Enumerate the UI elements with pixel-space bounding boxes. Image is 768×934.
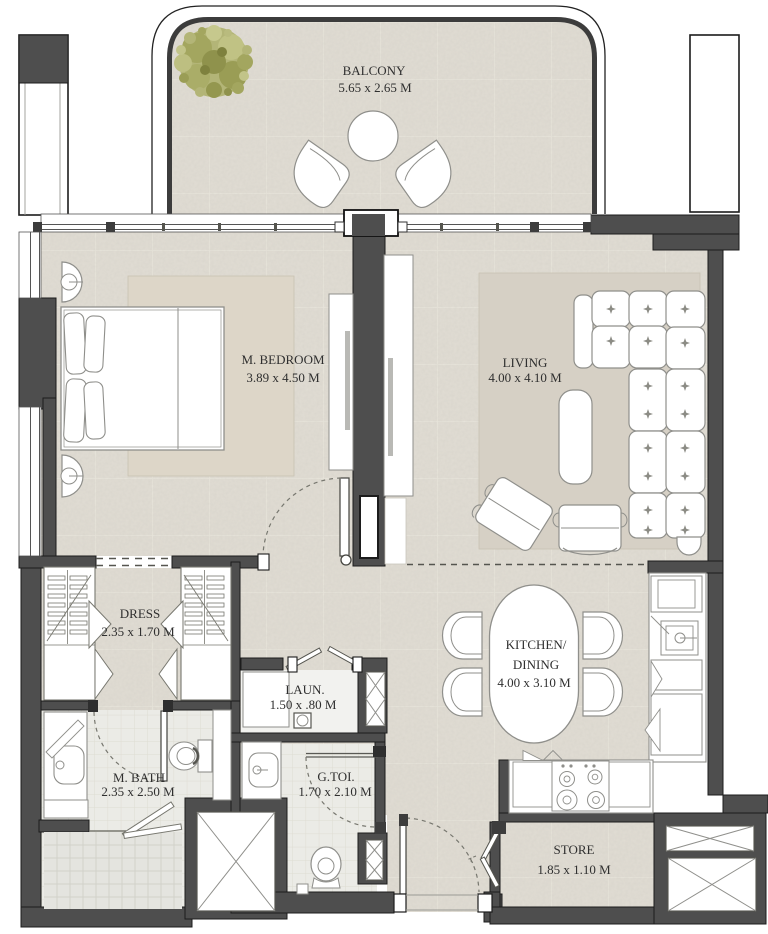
svg-text:G.TOI.: G.TOI. (317, 769, 354, 784)
svg-text:1.85 x 1.10 M: 1.85 x 1.10 M (537, 862, 611, 877)
svg-text:2.35 x 1.70 M: 2.35 x 1.70 M (101, 624, 175, 639)
svg-text:1.70 x 2.10 M: 1.70 x 2.10 M (298, 784, 372, 799)
svg-text:STORE: STORE (554, 842, 595, 857)
svg-text:4.00 x 3.10 M: 4.00 x 3.10 M (497, 675, 571, 690)
svg-text:KITCHEN/: KITCHEN/ (506, 637, 567, 652)
svg-text:3.89 x 4.50 M: 3.89 x 4.50 M (246, 370, 320, 385)
svg-text:DINING: DINING (513, 657, 559, 672)
svg-text:2.35 x 2.50 M: 2.35 x 2.50 M (101, 784, 175, 799)
svg-text:M. BEDROOM: M. BEDROOM (241, 352, 325, 367)
svg-text:M. BATH: M. BATH (113, 770, 165, 785)
svg-text:DRESS: DRESS (120, 606, 160, 621)
svg-text:5.65 x 2.65 M: 5.65 x 2.65 M (338, 80, 412, 95)
svg-text:1.50 x .80 M: 1.50 x .80 M (270, 697, 337, 712)
svg-text:LIVING: LIVING (503, 355, 548, 370)
svg-text:LAUN.: LAUN. (285, 682, 324, 697)
svg-text:BALCONY: BALCONY (343, 63, 406, 78)
svg-text:4.00 x 4.10 M: 4.00 x 4.10 M (488, 370, 562, 385)
